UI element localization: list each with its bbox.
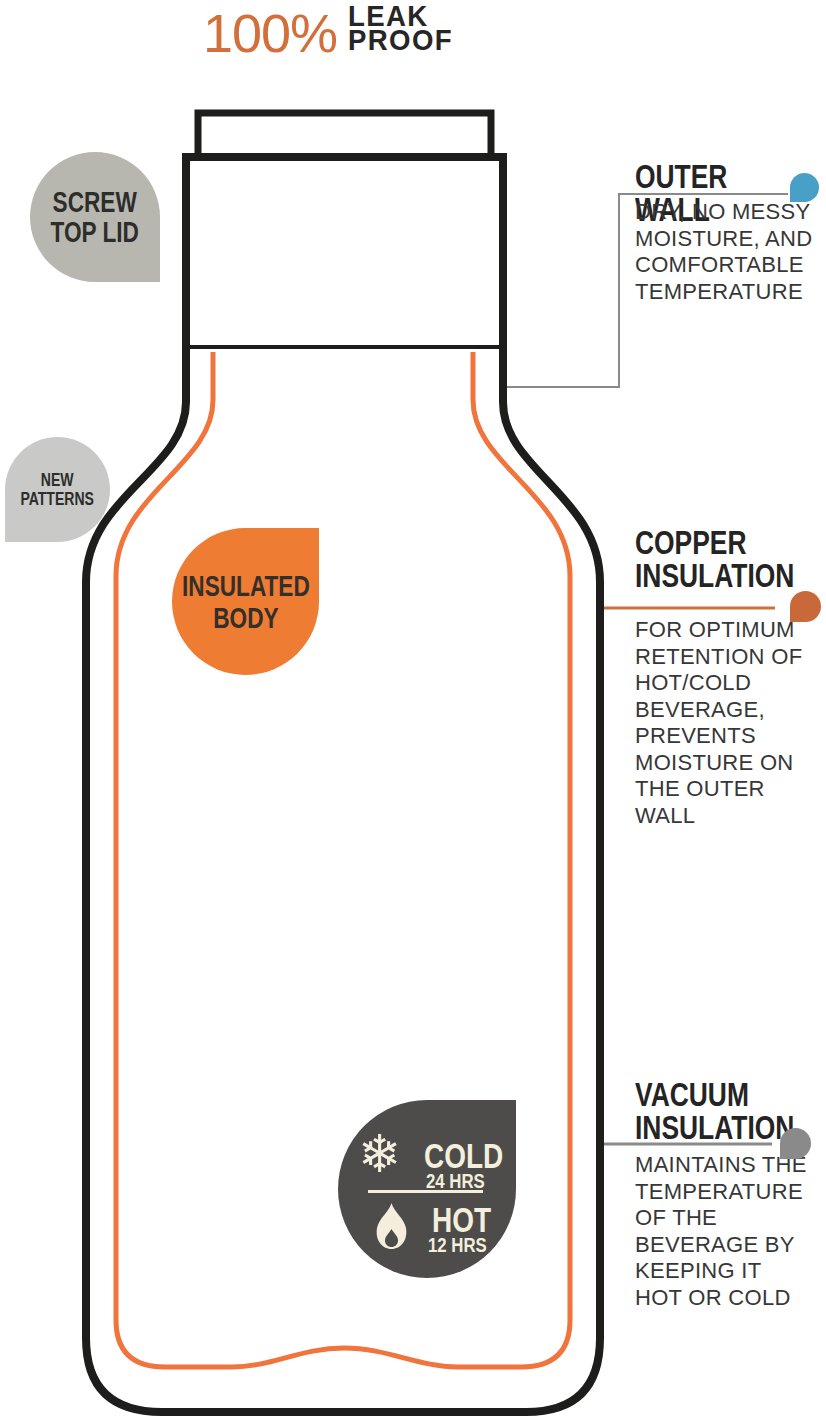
new-patterns-badge: NEW PATTERNS — [5, 437, 110, 542]
outer-wall-body: DRY, NO MESSY MOISTURE, AND COMFORTABLE … — [635, 199, 812, 305]
insulated-body-badge: INSULATED BODY — [172, 528, 319, 675]
cold-label: COLD — [424, 1138, 503, 1173]
bottle-cap — [186, 157, 503, 349]
vacuum-insulation-drop-icon — [780, 1128, 811, 1159]
copper-insulation-drop-icon — [790, 591, 821, 622]
copper-insulation-heading: COPPER INSULATION — [635, 526, 794, 592]
leak-proof-bottle-infographic: 100% LEAK PROOF SCREW TOP LID NEW PATTER… — [0, 0, 826, 1418]
snowflake-icon: ❄ — [358, 1128, 402, 1180]
bottle-outer-wall-outline — [86, 349, 600, 1412]
screw-top-lid-label: SCREW TOP LID — [51, 187, 139, 247]
cold-duration: 24 HRS — [426, 1170, 485, 1191]
retention-divider — [368, 1190, 483, 1193]
vacuum-insulation-body: MAINTAINS THE TEMPERATURE OF THE BEVERAG… — [635, 1152, 807, 1311]
vacuum-insulation-heading: VACUUM INSULATION — [635, 1078, 794, 1144]
bottle-lid-top — [198, 113, 491, 158]
hot-label: HOT — [432, 1202, 491, 1237]
new-patterns-label: NEW PATTERNS — [21, 471, 95, 509]
hot-duration: 12 HRS — [428, 1234, 487, 1255]
title-leak-proof: LEAK PROOF — [348, 4, 453, 52]
retention-badge: ❄ COLD 24 HRS HOT 12 HRS — [338, 1100, 516, 1278]
title-percent: 100% — [203, 2, 337, 64]
screw-top-lid-badge: SCREW TOP LID — [30, 152, 160, 282]
insulated-body-label: INSULATED BODY — [182, 570, 310, 634]
outer-wall-drop-icon — [790, 173, 819, 202]
copper-insulation-body: FOR OPTIMUM RETENTION OF HOT/COLD BEVERA… — [635, 617, 802, 829]
flame-icon — [375, 1203, 408, 1251]
